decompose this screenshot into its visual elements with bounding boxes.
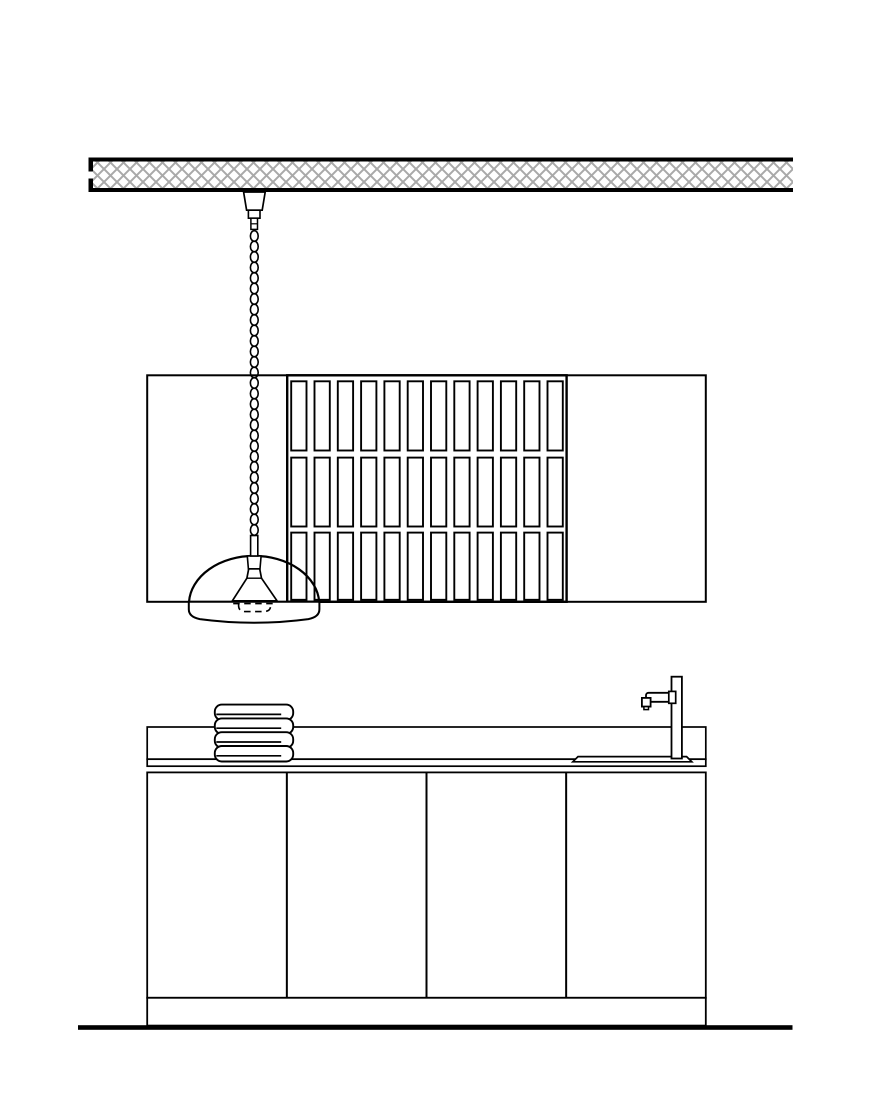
faucet-collar [669,691,676,703]
lamp-socket-stem [251,536,258,557]
ceiling-canopy [244,192,266,210]
slat [454,458,469,527]
slat [524,458,539,527]
floor-line [78,1025,793,1030]
faucet-aerator [642,698,651,707]
coil-loop [250,231,258,242]
kitchen-elevation-svg [0,0,870,1110]
coil-loop [250,357,258,368]
coil-loop [250,262,258,273]
coil-loop [250,325,258,336]
slat [454,533,469,600]
ceiling-left-cap-upper [89,158,94,172]
slat [501,458,516,527]
ceiling-left-cap-lower [89,179,94,193]
coil-loop [250,273,258,284]
slat [361,458,376,527]
slat [361,381,376,450]
slat [291,458,306,527]
base-cabinet [147,772,706,1025]
coil-loop [250,315,258,326]
ceiling-bottom-edge [89,188,794,192]
drawing-canvas [0,0,870,1110]
slat [315,381,330,450]
towel [215,746,293,762]
slat [501,533,516,600]
slat [408,381,423,450]
slat [524,533,539,600]
slat [408,458,423,527]
slat [361,533,376,600]
slat [384,381,399,450]
canopy-connector [248,210,260,218]
slat [478,533,493,600]
upper-cabinet-body [147,375,706,602]
slat [384,533,399,600]
slat [548,381,563,450]
slat [431,381,446,450]
upper-cabinet [147,375,706,602]
coil-loop [250,241,258,252]
slat [478,458,493,527]
slat [454,381,469,450]
plinth [147,998,706,1026]
slat [548,458,563,527]
slat [548,533,563,600]
slat [408,533,423,600]
slat [338,533,353,600]
slat [384,458,399,527]
coil-loop [250,252,258,263]
slat [338,381,353,450]
folded-towel-stack [215,705,293,762]
slat [338,458,353,527]
faucet-aerator-tip [644,707,649,710]
slat [478,381,493,450]
coil-loop [250,294,258,305]
slat [524,381,539,450]
coil-loop [250,336,258,347]
coil-loop [250,304,258,315]
coil-loop [250,346,258,357]
lamp-socket-cup [247,556,261,569]
slat [291,381,306,450]
ceiling-hatch-fill [93,162,793,189]
slat [431,458,446,527]
faucet-riser [672,677,682,759]
ceiling-slab [89,158,794,193]
ceiling-top-edge [89,158,794,162]
slat [431,533,446,600]
coil-loop [250,283,258,294]
lampshade-rim-band [189,602,320,623]
slat [315,458,330,527]
slat [501,381,516,450]
